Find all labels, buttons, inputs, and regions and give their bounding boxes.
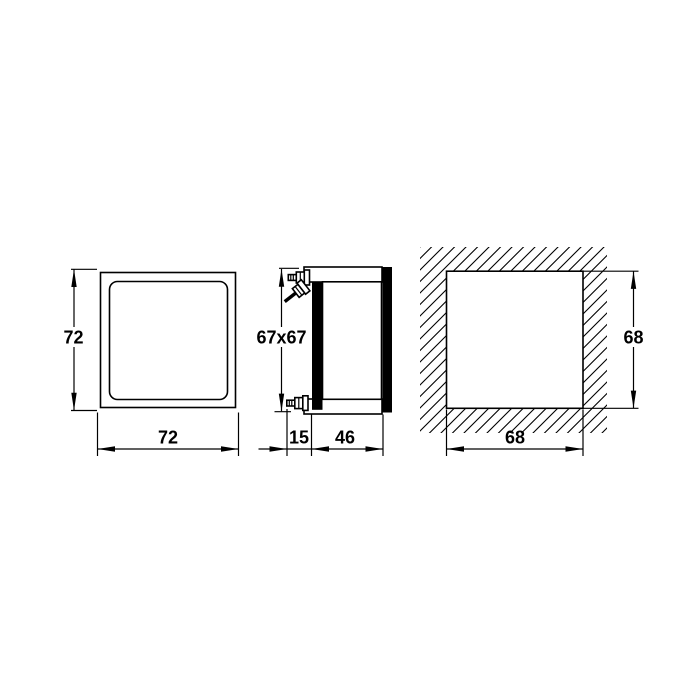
dimension-drawing: 72 72 xyxy=(0,0,700,700)
cutout-square xyxy=(447,271,584,408)
front-display-window xyxy=(110,282,228,400)
dim-label-front-width: 72 xyxy=(158,428,178,448)
screw-washer xyxy=(303,396,308,411)
rear-panel-bar xyxy=(312,282,323,410)
front-bezel-edge xyxy=(383,267,393,413)
dim-label-side-section: 67x67 xyxy=(256,328,306,348)
case-body xyxy=(323,282,382,400)
dim-label-cutout-width: 68 xyxy=(505,428,525,448)
screw-shaft xyxy=(287,400,295,406)
dim-label-depth-body: 46 xyxy=(335,428,355,448)
dim-label-cutout-height: 68 xyxy=(623,328,643,348)
dim-label-front-height: 72 xyxy=(63,328,83,348)
dim-label-depth-front: 15 xyxy=(289,428,309,448)
panel-cutout-view xyxy=(420,247,607,433)
screw-washer xyxy=(304,270,309,285)
screw-shaft xyxy=(288,275,296,281)
front-view xyxy=(101,273,236,408)
mounting-bracket-top xyxy=(304,267,382,282)
technical-drawing-page: 72 72 xyxy=(0,0,700,700)
